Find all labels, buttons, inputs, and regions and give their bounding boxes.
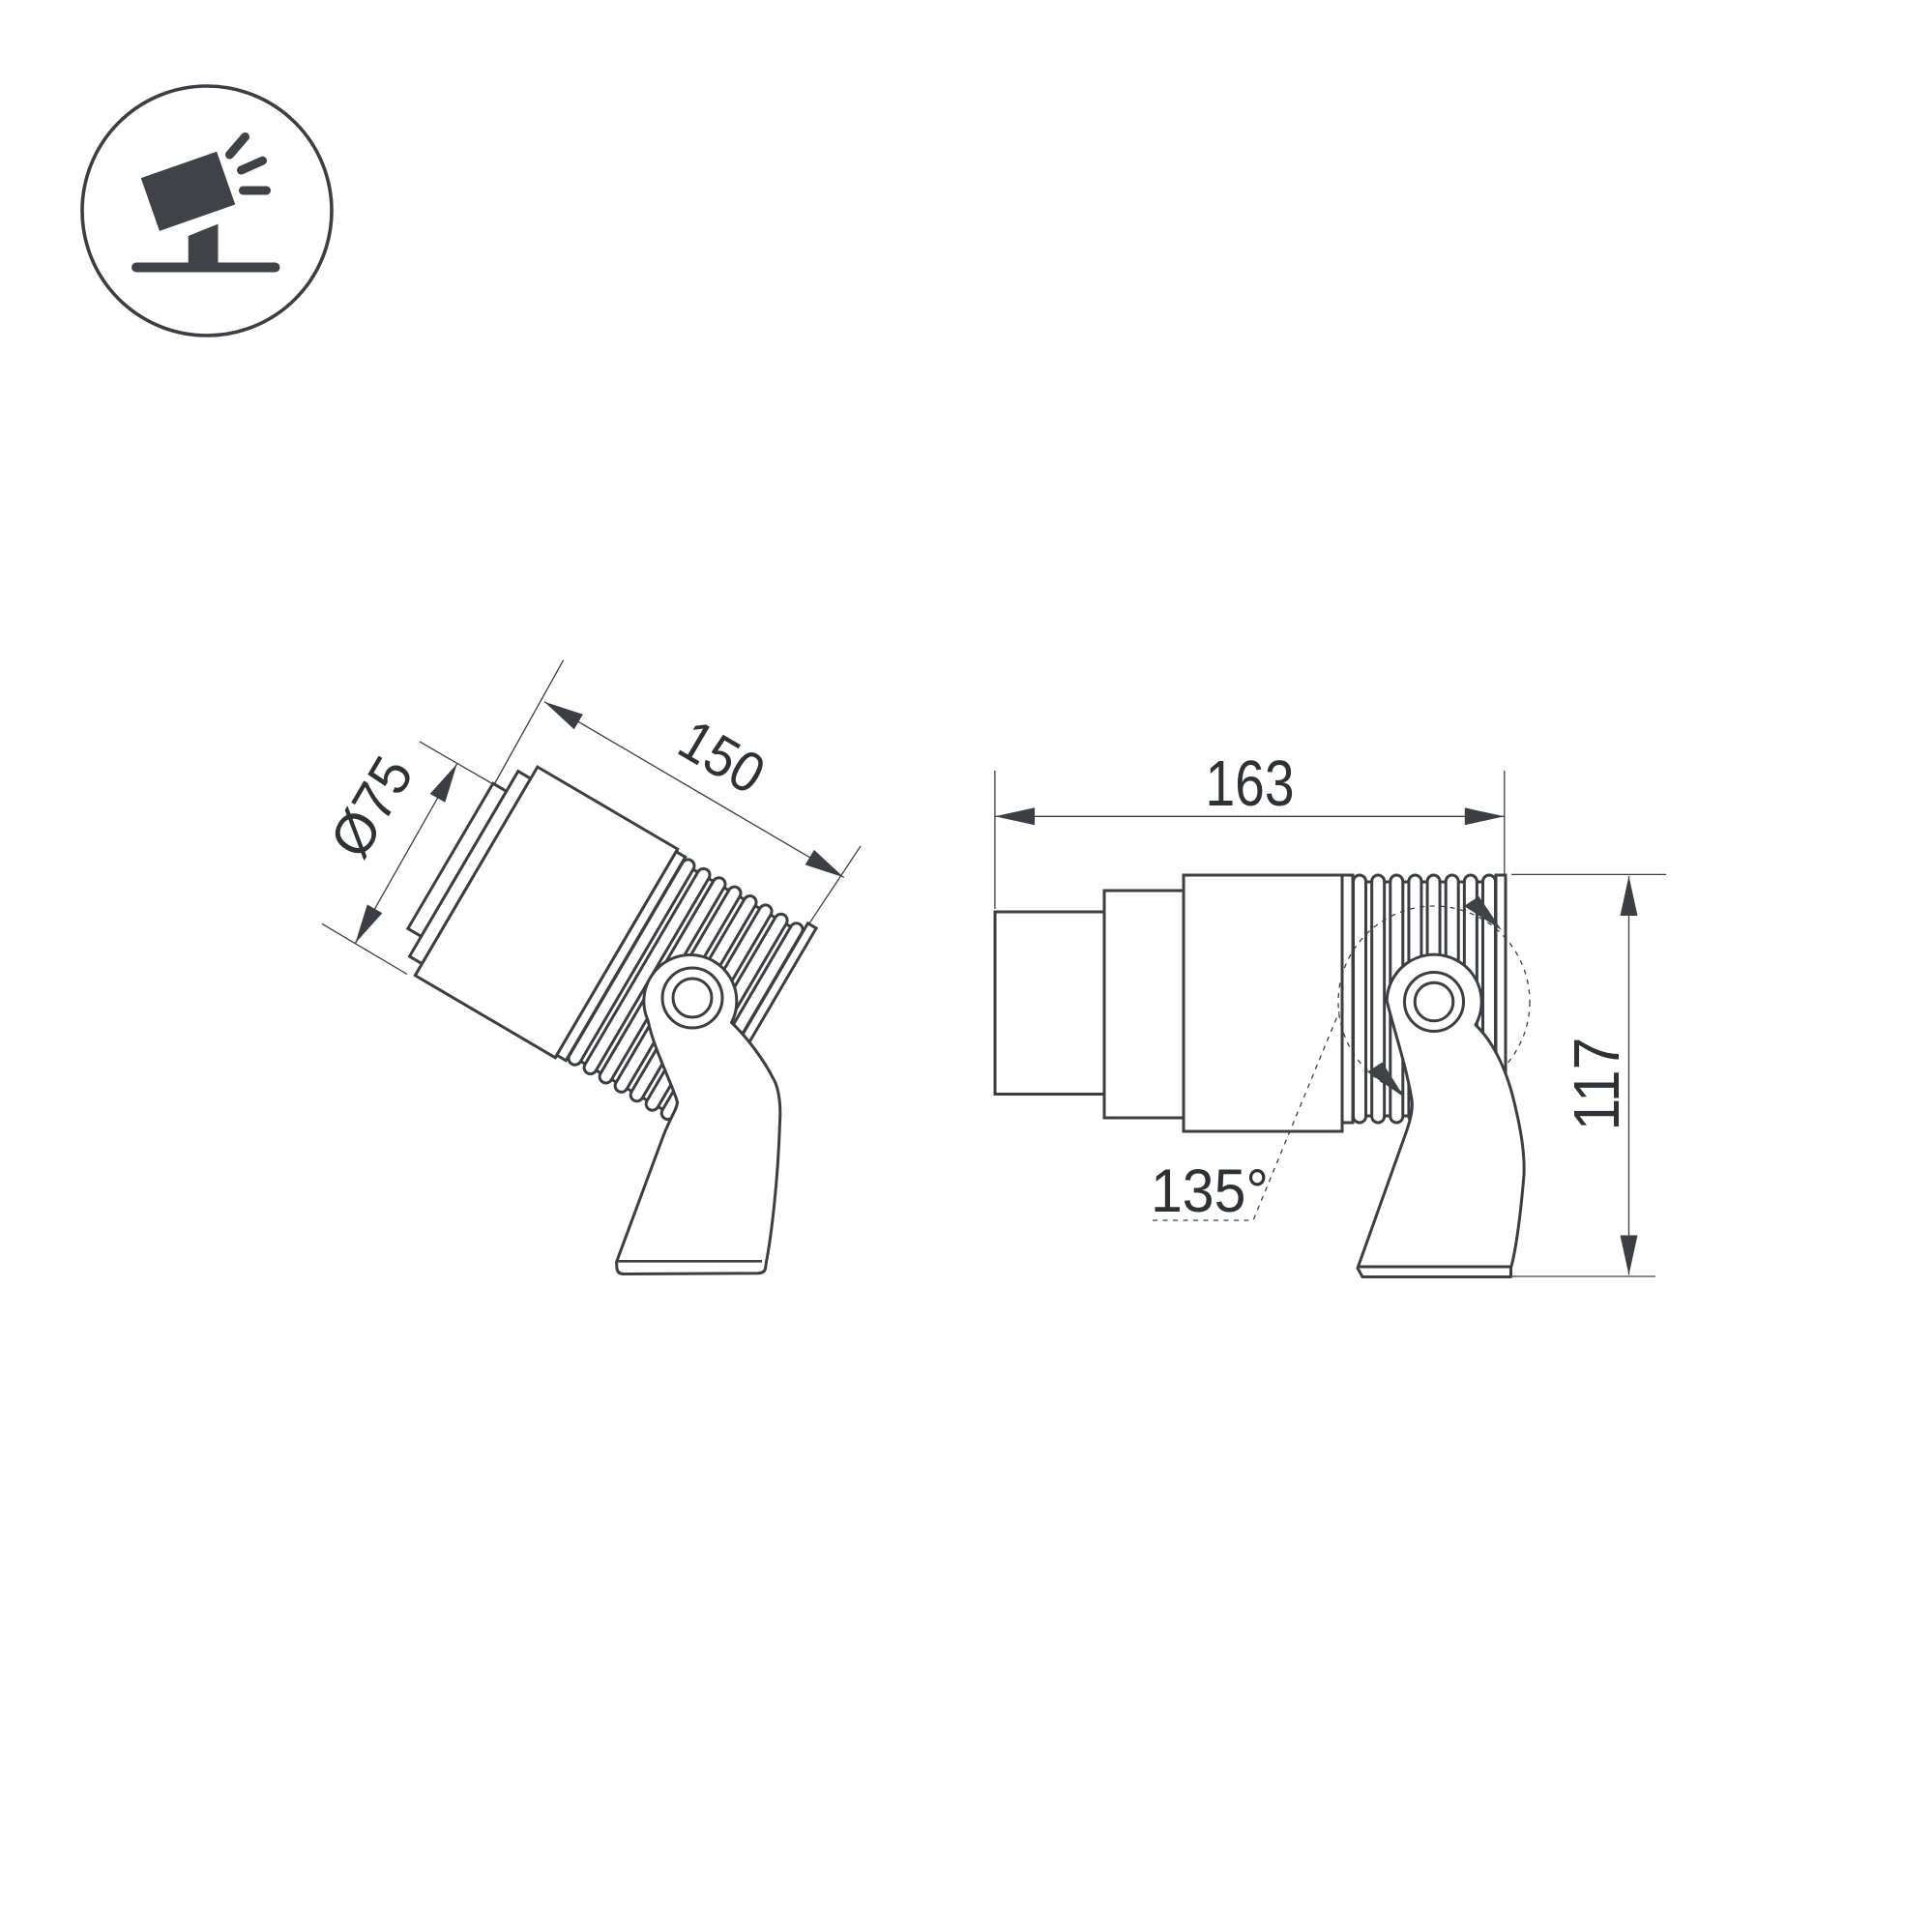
svg-text:163: 163 <box>1206 747 1295 820</box>
svg-text:135°: 135° <box>1151 1157 1269 1225</box>
svg-text:117: 117 <box>1561 1038 1633 1131</box>
